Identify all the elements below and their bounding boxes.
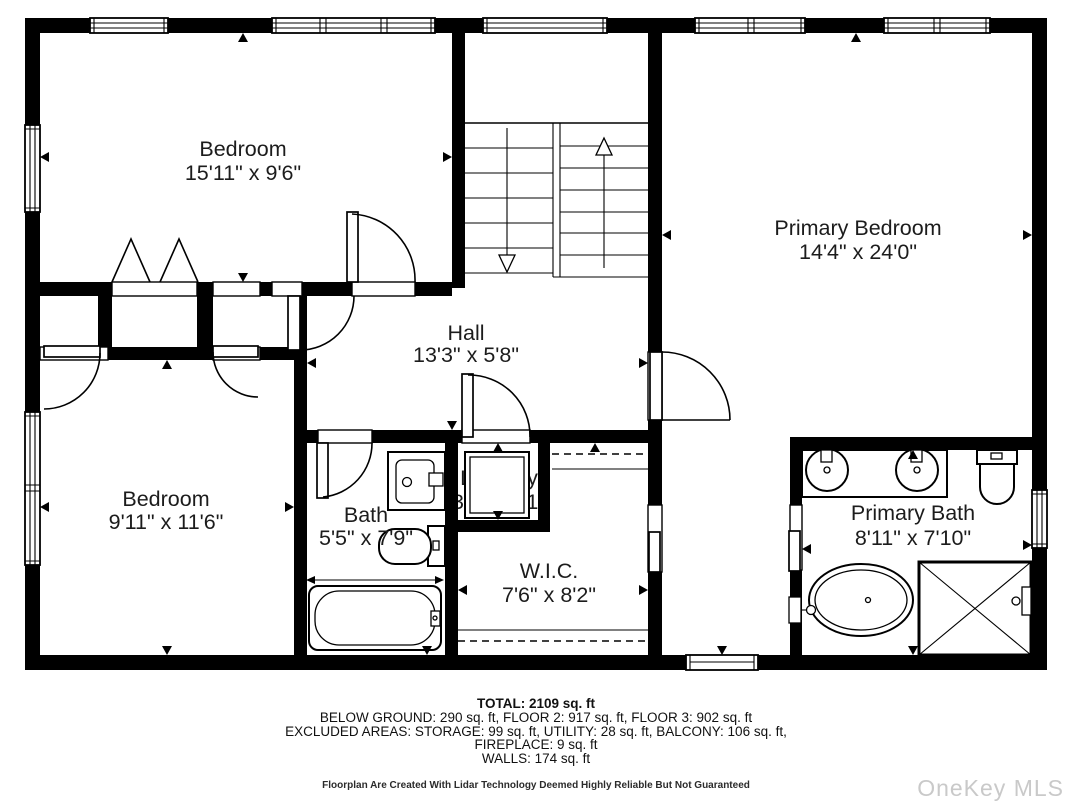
wall-closet-divider-1 (98, 296, 112, 347)
window-top-4 (695, 18, 805, 33)
summary-walls: WALLS: 174 sq. ft (0, 752, 1072, 766)
onekey-mls-watermark: OneKey MLS (917, 775, 1064, 802)
summary-fireplace: FIREPLACE: 9 sq. ft (0, 738, 1072, 752)
room-dims: 8'11" x 7'10" (855, 526, 971, 550)
window-top-1 (90, 18, 168, 33)
wall-hall-south-b (372, 430, 462, 443)
disclaimer-text: Floorplan Are Created With Lidar Technol… (0, 780, 1072, 791)
room-dims: 9'11" x 11'6" (109, 510, 224, 534)
plan-background (0, 0, 1072, 804)
closet2-opening-top (213, 282, 260, 296)
wall-bed2-north-a (108, 347, 213, 360)
room-name: Bath (344, 503, 388, 527)
window-right-1 (1032, 490, 1047, 548)
room-name: Bedroom (199, 137, 286, 161)
wall-closet-divider-2 (197, 296, 213, 347)
wall-laundry-south (445, 520, 550, 532)
window-top-3 (483, 18, 607, 33)
room-dims: 13'3" x 5'8" (413, 343, 519, 367)
wall-bed1-south-a (40, 282, 112, 296)
wall-primary-west-mid (648, 420, 662, 505)
wall-hall-south-a (294, 430, 318, 443)
wic-door (649, 532, 660, 572)
wall-bed1-south-c (260, 282, 272, 296)
wall-outer-right (1032, 18, 1047, 670)
pbath-toilet (977, 450, 1017, 504)
floorplan-page: Laundry 3'2" x 3'1" (0, 0, 1072, 804)
room-name: Bedroom (122, 487, 209, 511)
closet1-opening (112, 282, 197, 296)
room-label-bedroom-1: Bedroom 15'11" x 9'6" (185, 137, 301, 185)
pbath-double-vanity (802, 449, 947, 497)
bath-door-opening (318, 430, 372, 443)
laundry-machine (465, 452, 529, 518)
wall-stairwell-west (452, 33, 465, 288)
pbath-door (789, 531, 800, 571)
wall-outer-bottom (25, 655, 1047, 670)
wall-bed1-south-b (197, 282, 214, 296)
wall-laundry-east (538, 443, 550, 520)
window-top-2 (272, 18, 435, 33)
hall-west-door-opening (272, 282, 302, 296)
room-dims: 7'6" x 8'2" (502, 583, 596, 607)
bathtub (306, 576, 444, 650)
room-name: W.I.C. (520, 559, 579, 583)
room-dims: 5'5" x 7'9" (319, 526, 413, 550)
wall-hall-south-c (530, 430, 648, 443)
room-label-primary-bath: Primary Bath 8'11" x 7'10" (851, 501, 975, 550)
room-label-bedroom-2: Bedroom 9'11" x 11'6" (109, 487, 224, 534)
window-left-2 (25, 412, 40, 565)
summary-total: TOTAL: 2109 sq. ft (0, 697, 1072, 711)
room-name: Primary Bedroom (774, 216, 941, 240)
wall-bed1-south-d (302, 282, 352, 296)
wall-primary-west-lower (648, 572, 662, 655)
pbath-shower (919, 562, 1031, 655)
summary-floors: BELOW GROUND: 290 sq. ft, FLOOR 2: 917 s… (0, 711, 1072, 725)
room-name: Primary Bath (851, 501, 975, 525)
wall-pbath-west-upper (790, 450, 802, 505)
area-summary: TOTAL: 2109 sq. ft BELOW GROUND: 290 sq.… (0, 697, 1072, 766)
wall-primary-west-upper (648, 33, 662, 352)
wall-bath-east (445, 443, 458, 655)
summary-excluded: EXCLUDED AREAS: STORAGE: 99 sq. ft, UTIL… (0, 725, 1072, 739)
room-dims: 14'4" x 24'0" (799, 240, 917, 264)
window-top-5 (884, 18, 990, 33)
wall-outer-left (25, 18, 40, 670)
room-label-primary-bedroom: Primary Bedroom 14'4" x 24'0" (774, 216, 941, 264)
room-name: Hall (447, 321, 484, 345)
window-left-1 (25, 125, 40, 212)
wall-bed1-south-e (415, 282, 452, 296)
floorplan-drawing: Laundry 3'2" x 3'1" (0, 0, 1072, 804)
balcony-door (686, 655, 758, 670)
room-dims: 15'11" x 9'6" (185, 161, 301, 185)
bed1-door-opening (352, 282, 415, 296)
bath-vanity-sink (388, 452, 445, 510)
